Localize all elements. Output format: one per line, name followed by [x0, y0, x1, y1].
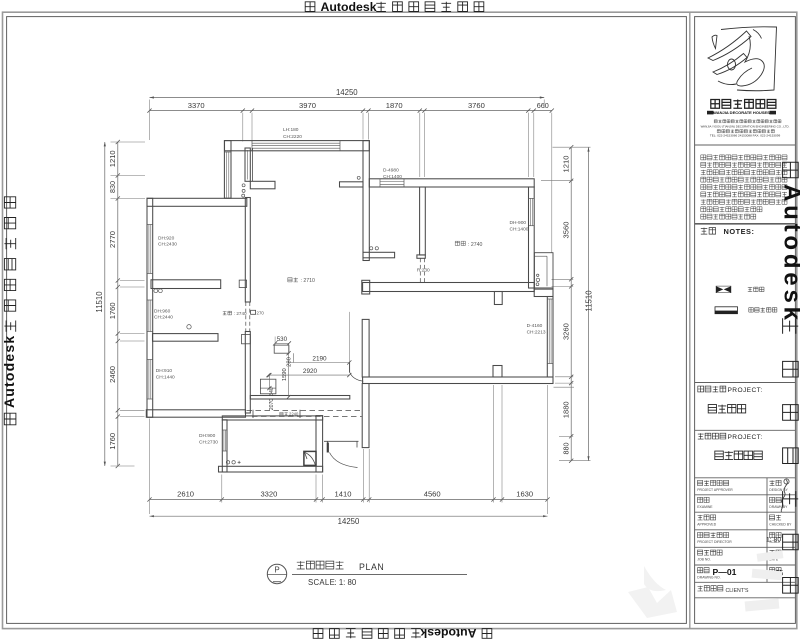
- svg-text:Autodesk: Autodesk: [420, 626, 476, 640]
- svg-text:CH:2430: CH:2430: [158, 242, 177, 248]
- svg-text:CH:1400: CH:1400: [510, 227, 529, 233]
- svg-text:1: 80: 1: 80: [766, 537, 781, 544]
- svg-text:DH:910: DH:910: [156, 368, 173, 374]
- svg-text:2240: 2240: [289, 412, 299, 417]
- svg-text:PLAN: PLAN: [359, 562, 384, 572]
- svg-text:CH:2730: CH:2730: [199, 439, 218, 445]
- svg-text:530: 530: [277, 336, 288, 343]
- svg-text:CH:2213: CH:2213: [527, 330, 546, 336]
- svg-text:1760: 1760: [108, 433, 117, 450]
- svg-text:CLIENT'S: CLIENT'S: [726, 588, 749, 594]
- svg-text:1210: 1210: [108, 150, 117, 167]
- svg-text:2610: 2610: [177, 490, 194, 499]
- svg-text:R:230: R:230: [417, 268, 430, 274]
- svg-text:2190: 2190: [312, 355, 327, 362]
- svg-text:14250: 14250: [336, 88, 358, 97]
- svg-text:270: 270: [257, 310, 265, 315]
- svg-text:: 2710: : 2710: [301, 278, 316, 284]
- svg-text:D-4980: D-4980: [383, 168, 399, 174]
- svg-text:3760: 3760: [468, 101, 485, 110]
- svg-text:DH:960: DH:960: [154, 308, 171, 314]
- svg-text:LH:180: LH:180: [283, 127, 299, 133]
- svg-text:4560: 4560: [424, 490, 441, 499]
- svg-text:CHECKED BY: CHECKED BY: [769, 523, 792, 527]
- svg-text:DH:920: DH:920: [158, 235, 175, 241]
- svg-text:SCALE: SCALE: [308, 578, 335, 587]
- svg-text:2070: 2070: [269, 399, 275, 411]
- svg-text:340: 340: [269, 387, 275, 396]
- svg-text:880: 880: [561, 443, 570, 455]
- svg-text:11510: 11510: [95, 291, 104, 313]
- svg-text:1590: 1590: [282, 368, 288, 381]
- svg-text:PROJECT:: PROJECT:: [728, 434, 763, 441]
- svg-text:DRAWN BY: DRAWN BY: [769, 505, 788, 509]
- svg-text:TEL: 022-24153066 24153088 F: TEL: 022-24153066 24153088 FAX: 022-2415…: [710, 134, 781, 138]
- svg-text:WANJIA YIGOU (TIANJIN) DECORAT: WANJIA YIGOU (TIANJIN) DECORATION ENGINE…: [701, 124, 790, 128]
- svg-text:3560: 3560: [561, 222, 570, 239]
- svg-text:PROJECT:: PROJECT:: [728, 387, 763, 394]
- svg-text:Autodesk: Autodesk: [321, 0, 377, 14]
- svg-text:P—01: P—01: [713, 567, 737, 577]
- svg-text:1880: 1880: [561, 401, 570, 418]
- svg-text:P: P: [274, 565, 279, 574]
- svg-text:280: 280: [286, 357, 292, 367]
- svg-text:PROJECT APPROVER: PROJECT APPROVER: [697, 488, 733, 492]
- svg-text:1630: 1630: [516, 490, 533, 499]
- svg-text:CH:1440: CH:1440: [156, 374, 175, 380]
- svg-text:1210: 1210: [561, 156, 570, 173]
- svg-text:WANJIA DECORATE HOUSES: WANJIA DECORATE HOUSES: [713, 110, 770, 115]
- svg-text:1410: 1410: [335, 490, 352, 499]
- svg-text:830: 830: [108, 181, 117, 193]
- svg-text:1870: 1870: [386, 101, 403, 110]
- svg-text:: 2740: : 2740: [468, 242, 483, 248]
- svg-text:11510: 11510: [585, 290, 594, 312]
- svg-text:660: 660: [537, 101, 549, 110]
- svg-text:3260: 3260: [561, 323, 570, 340]
- svg-text:CH:2440: CH:2440: [154, 314, 173, 320]
- svg-text:: 1: 80: : 1: 80: [335, 578, 357, 587]
- svg-text:DH:900: DH:900: [199, 433, 216, 439]
- svg-text:3970: 3970: [299, 101, 316, 110]
- svg-text:14250: 14250: [338, 517, 360, 526]
- svg-text:2460: 2460: [108, 366, 117, 383]
- svg-text:3320: 3320: [260, 490, 277, 499]
- svg-text:APPROVED: APPROVED: [697, 523, 716, 527]
- svg-text:D-4160: D-4160: [527, 323, 543, 329]
- svg-text:: 2740: : 2740: [234, 311, 247, 316]
- svg-text:2920: 2920: [303, 368, 318, 375]
- svg-text:1760: 1760: [108, 302, 117, 319]
- svg-text:Autodesk: Autodesk: [779, 184, 800, 324]
- svg-text:Autodesk: Autodesk: [1, 335, 17, 408]
- svg-text:JOB NO.: JOB NO.: [697, 558, 711, 562]
- svg-text:CH:2220: CH:2220: [283, 134, 302, 140]
- svg-text:PROJECT DIRECTOR: PROJECT DIRECTOR: [697, 540, 732, 544]
- svg-text:CH:1400: CH:1400: [383, 174, 402, 180]
- svg-text:2770: 2770: [108, 231, 117, 248]
- svg-text:DH-900: DH-900: [510, 220, 527, 226]
- svg-text:3370: 3370: [188, 101, 205, 110]
- svg-text:EXAMINE: EXAMINE: [697, 505, 713, 509]
- svg-text:DESIGN BY: DESIGN BY: [769, 488, 788, 492]
- svg-text:NOTES:: NOTES:: [724, 227, 755, 236]
